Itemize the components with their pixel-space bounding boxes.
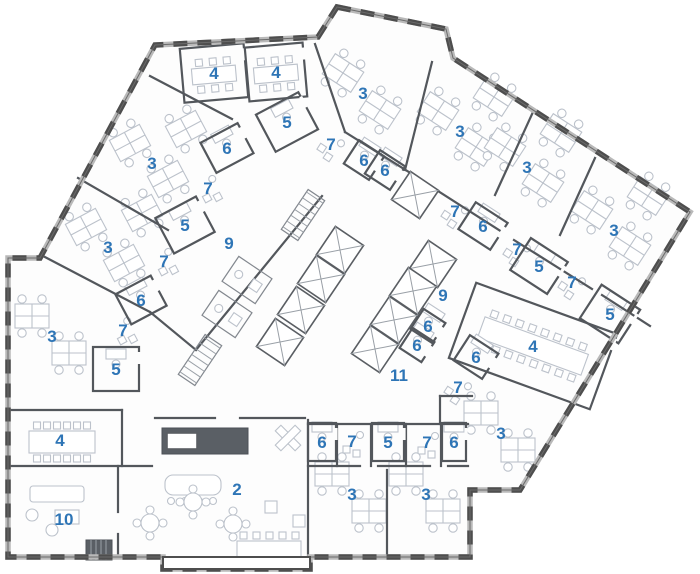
room-label-3: 3 — [496, 424, 505, 443]
room-label-6: 6 — [359, 151, 368, 170]
room-label-5: 5 — [111, 360, 120, 379]
room-label-4: 4 — [271, 63, 281, 82]
entrance-vestibule — [163, 557, 310, 569]
room-label-3: 3 — [147, 154, 156, 173]
room-label-3: 3 — [522, 158, 531, 177]
room-label-3: 3 — [347, 485, 356, 504]
room-label-3: 3 — [421, 485, 430, 504]
room-label-7: 7 — [326, 135, 335, 154]
room-label-7: 7 — [512, 240, 521, 259]
room-label-7: 7 — [159, 252, 168, 271]
room-label-5: 5 — [383, 433, 392, 452]
room-label-7: 7 — [450, 202, 459, 221]
room-label-6: 6 — [317, 433, 326, 452]
room-label-6: 6 — [423, 317, 432, 336]
room-label-3: 3 — [455, 122, 464, 141]
room-label-6: 6 — [380, 161, 389, 180]
room-label-5: 5 — [534, 257, 543, 276]
floor-plan-svg: 4456735937673537663376375795664611741026… — [0, 0, 700, 574]
room-label-11: 11 — [390, 366, 408, 385]
room-label-5: 5 — [605, 305, 614, 324]
room-label-5: 5 — [282, 113, 291, 132]
room-label-6: 6 — [471, 348, 480, 367]
room-label-6: 6 — [136, 291, 145, 310]
room-label-4: 4 — [209, 64, 219, 83]
room-label-6: 6 — [222, 139, 231, 158]
room-label-10: 10 — [55, 510, 74, 529]
room-label-9: 9 — [224, 234, 233, 253]
room-label-7: 7 — [453, 378, 462, 397]
room-label-6: 6 — [449, 433, 458, 452]
room-label-9: 9 — [438, 286, 447, 305]
room-label-3: 3 — [358, 84, 367, 103]
room-label-3: 3 — [103, 238, 112, 257]
room-label-4: 4 — [55, 431, 65, 450]
room-label-3: 3 — [47, 327, 56, 346]
floor-plan-page: 4456735937673537663376375795664611741026… — [0, 0, 700, 574]
room-label-7: 7 — [347, 432, 356, 451]
room-label-3: 3 — [609, 221, 618, 240]
room-label-6: 6 — [478, 217, 487, 236]
room-label-4: 4 — [528, 337, 538, 356]
room-label-7: 7 — [118, 321, 127, 340]
room-label-7: 7 — [567, 273, 576, 292]
room-label-7: 7 — [422, 433, 431, 452]
room-label-2: 2 — [232, 480, 241, 499]
room-label-7: 7 — [203, 179, 212, 198]
room-label-5: 5 — [180, 216, 189, 235]
room-label-6: 6 — [412, 336, 421, 355]
